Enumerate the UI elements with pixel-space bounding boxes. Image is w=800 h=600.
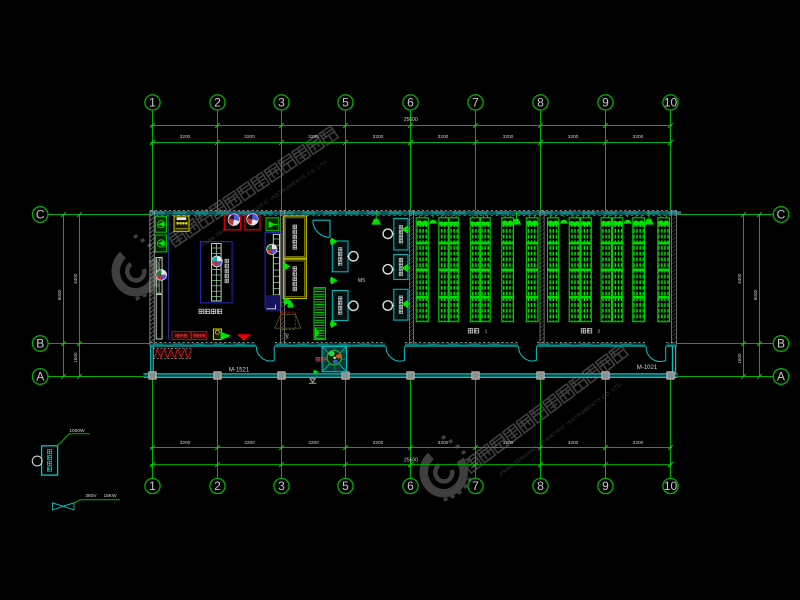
svg-text:M5: M5 — [285, 332, 290, 338]
svg-text:10: 10 — [664, 96, 678, 110]
svg-text:9: 9 — [602, 96, 609, 110]
svg-text:6000: 6000 — [57, 289, 62, 300]
svg-text:6000: 6000 — [753, 289, 758, 300]
svg-text:15KW: 15KW — [103, 493, 117, 499]
svg-text:3200: 3200 — [438, 134, 449, 140]
svg-text:M5: M5 — [358, 278, 365, 284]
svg-text:7: 7 — [472, 479, 479, 493]
svg-text:5: 5 — [342, 479, 349, 493]
svg-text:6: 6 — [407, 96, 414, 110]
svg-text:1: 1 — [149, 96, 156, 110]
svg-text:25600: 25600 — [404, 117, 418, 123]
svg-text:10: 10 — [664, 479, 678, 493]
svg-text:1: 1 — [485, 329, 488, 335]
svg-text:3200: 3200 — [180, 440, 191, 446]
svg-text:3200: 3200 — [373, 440, 384, 446]
svg-text:8: 8 — [537, 96, 544, 110]
svg-text:C: C — [777, 208, 786, 222]
svg-text:2: 2 — [214, 479, 221, 493]
svg-text:2: 2 — [598, 329, 601, 335]
svg-text:C: C — [36, 208, 45, 222]
svg-text:4400: 4400 — [737, 273, 742, 284]
svg-text:1600: 1600 — [737, 353, 742, 364]
svg-text:3200: 3200 — [503, 134, 514, 140]
svg-text:1600: 1600 — [73, 352, 78, 363]
svg-text:3200: 3200 — [633, 134, 644, 140]
svg-text:3200: 3200 — [244, 134, 255, 140]
svg-text:8: 8 — [537, 479, 544, 493]
svg-text:380V: 380V — [85, 493, 97, 499]
svg-text:7: 7 — [472, 96, 479, 110]
svg-text:3200: 3200 — [568, 134, 579, 140]
svg-text:25600: 25600 — [404, 458, 418, 464]
svg-text:3200: 3200 — [503, 440, 514, 446]
svg-text:3200: 3200 — [244, 440, 255, 446]
svg-text:3200: 3200 — [373, 134, 384, 140]
svg-text:2: 2 — [214, 96, 221, 110]
svg-text:3200: 3200 — [633, 440, 644, 446]
svg-text:3: 3 — [278, 96, 285, 110]
svg-text:3200: 3200 — [568, 440, 579, 446]
svg-text:3: 3 — [278, 479, 285, 493]
svg-text:A: A — [36, 370, 44, 384]
svg-text:3200: 3200 — [180, 134, 191, 140]
svg-text:3200: 3200 — [308, 440, 319, 446]
svg-text:B: B — [36, 337, 44, 351]
svg-text:3200: 3200 — [438, 440, 449, 446]
svg-text:3200: 3200 — [308, 134, 319, 140]
svg-text:M-1021: M-1021 — [637, 365, 658, 371]
svg-text:1000W: 1000W — [69, 428, 85, 434]
svg-text:B: B — [777, 337, 785, 351]
svg-text:5: 5 — [342, 96, 349, 110]
svg-text:6: 6 — [407, 479, 414, 493]
svg-text:M-1521: M-1521 — [229, 368, 250, 374]
svg-text:9: 9 — [602, 479, 609, 493]
svg-text:4400: 4400 — [73, 273, 78, 284]
svg-text:1: 1 — [149, 479, 156, 493]
svg-text:A: A — [777, 370, 785, 384]
